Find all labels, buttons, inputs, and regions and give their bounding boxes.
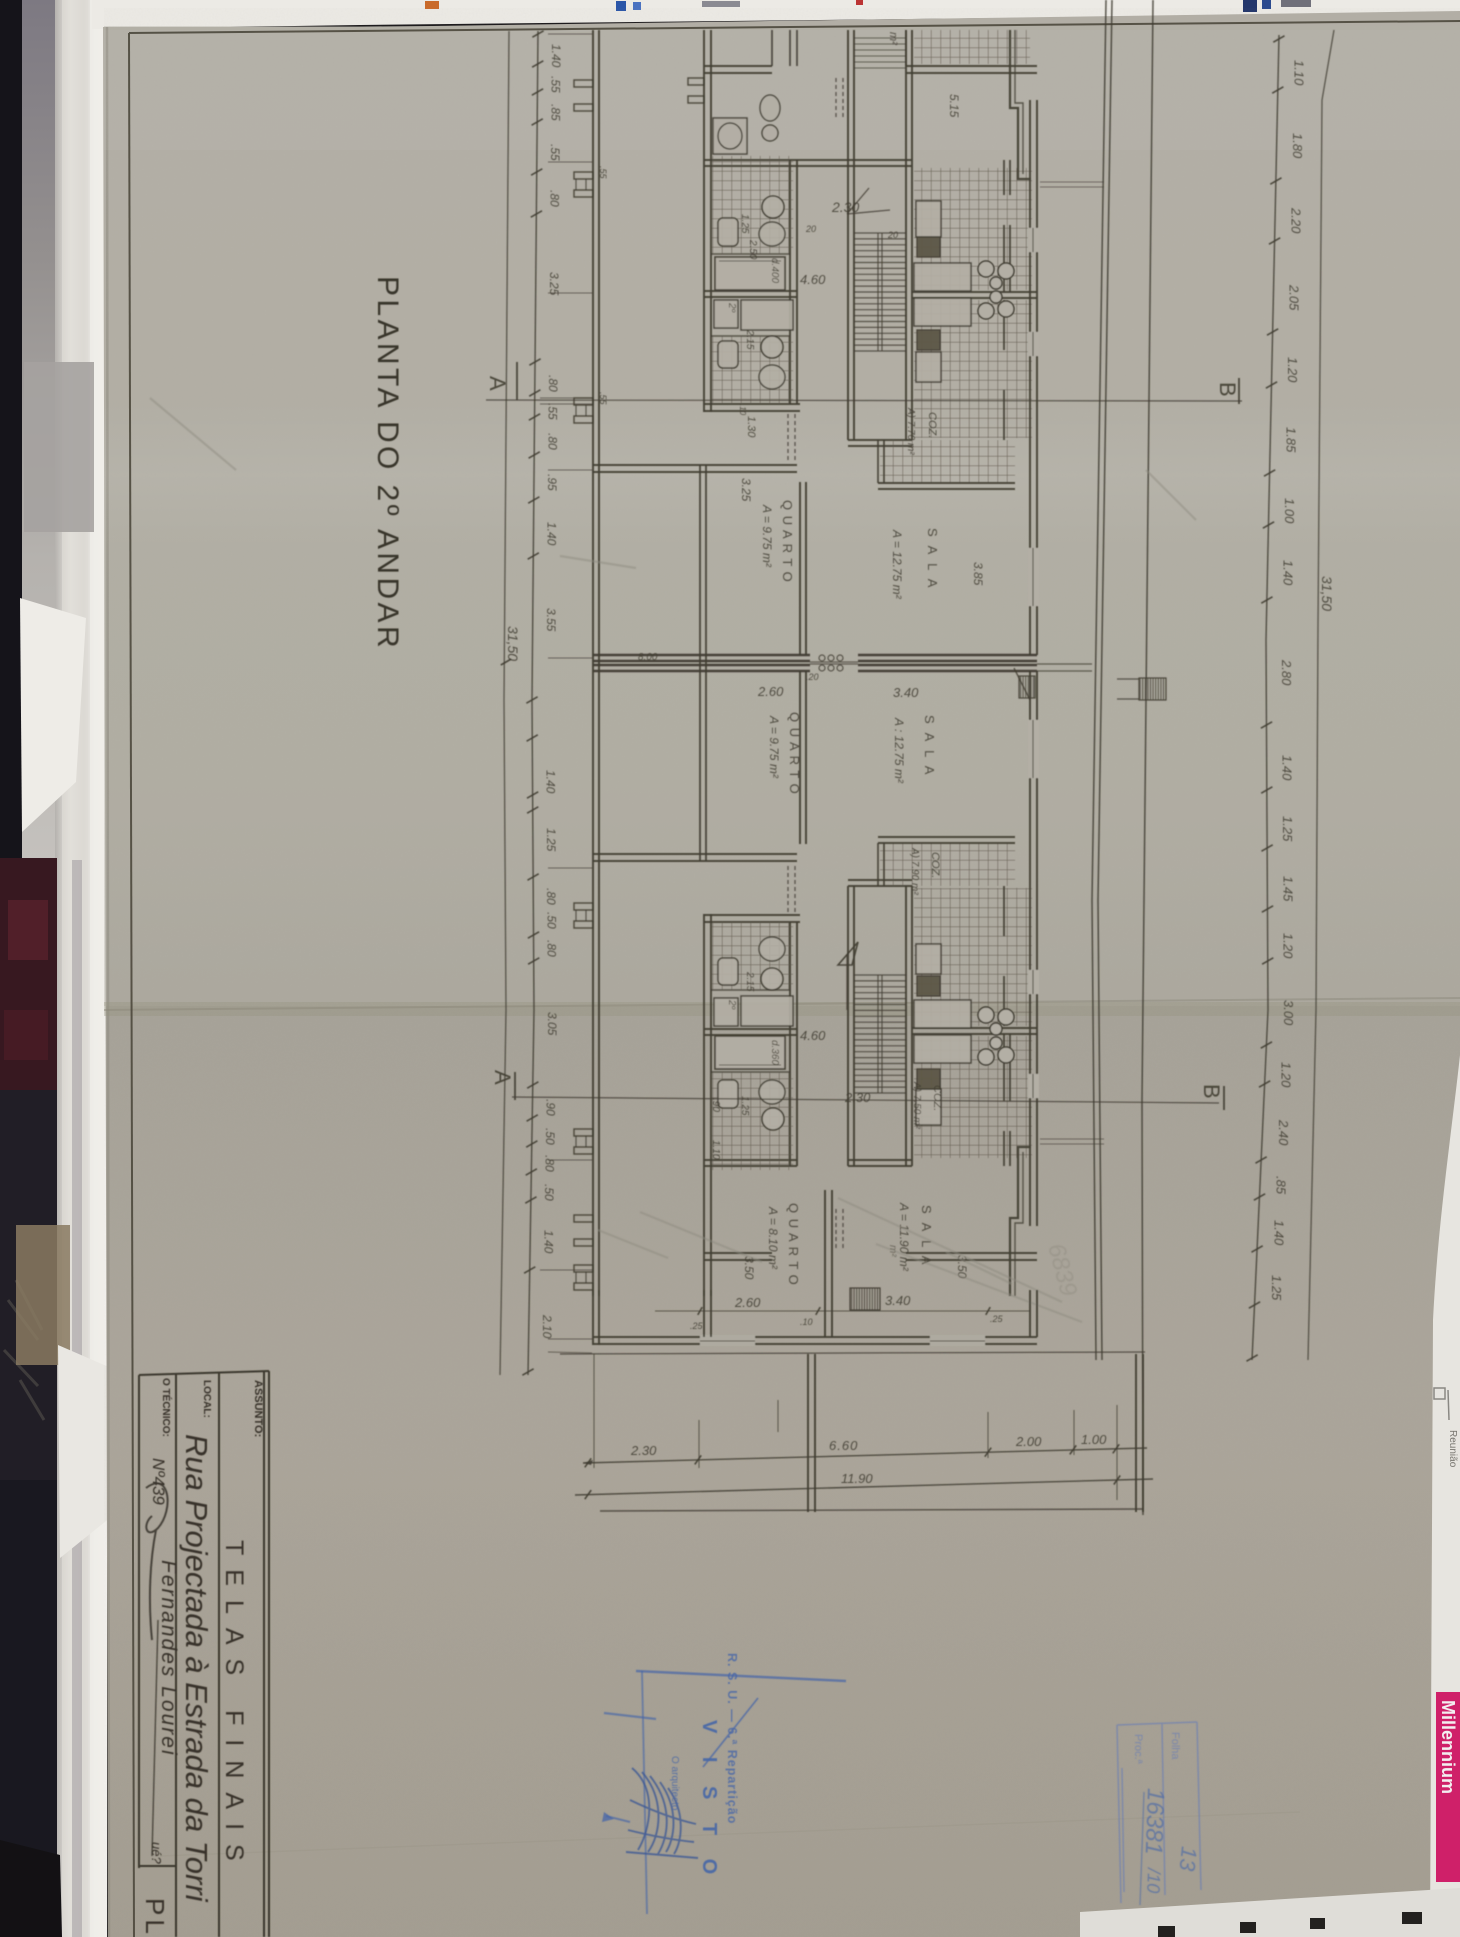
svg-text:A) 7.90 m²: A) 7.90 m² — [909, 847, 920, 895]
svg-text:Nº439: Nº439 — [149, 1458, 168, 1505]
svg-text:LOCAL:: LOCAL: — [201, 1380, 212, 1418]
svg-text:.25: .25 — [990, 1314, 1004, 1324]
svg-text:ué?: ué? — [149, 1842, 164, 1864]
svg-text:S A L A: S A L A — [922, 715, 937, 777]
svg-text:.90: .90 — [710, 1098, 721, 1112]
svg-text:3.25: 3.25 — [739, 478, 753, 502]
svg-text:3.25: 3.25 — [547, 272, 561, 296]
svg-text:d.360: d.360 — [769, 1040, 780, 1065]
svg-text:PLANTA DO 2º ANDAR: PLANTA DO 2º ANDAR — [371, 276, 404, 651]
svg-text:.80: .80 — [545, 940, 559, 957]
svg-text:1.40: 1.40 — [1271, 1220, 1286, 1246]
svg-text:2.60: 2.60 — [734, 1295, 761, 1310]
svg-text:8.00: 8.00 — [638, 652, 658, 663]
svg-text:1.25: 1.25 — [739, 1096, 750, 1116]
svg-text:.55: .55 — [598, 392, 608, 406]
svg-text:2.80: 2.80 — [1279, 659, 1294, 686]
svg-text:.50: .50 — [543, 1128, 557, 1145]
svg-text:1.25: 1.25 — [1269, 1275, 1284, 1301]
svg-text:m²: m² — [887, 32, 899, 45]
svg-text:Fernandes Lourei: Fernandes Lourei — [157, 1560, 180, 1757]
svg-text:Q U A R T O: Q U A R T O — [780, 500, 795, 583]
svg-text:.55: .55 — [546, 403, 560, 420]
svg-text:1.40: 1.40 — [545, 522, 559, 546]
svg-text:.90: .90 — [544, 1099, 558, 1116]
svg-text:V I S T O: V I S T O — [698, 1720, 720, 1883]
svg-text:ASSUNTO:: ASSUNTO: — [252, 1380, 264, 1437]
svg-text:3.05: 3.05 — [545, 1012, 559, 1036]
svg-text:1.10: 1.10 — [1292, 60, 1307, 86]
svg-text:31,50: 31,50 — [505, 626, 521, 661]
svg-text:1.25: 1.25 — [739, 214, 750, 234]
svg-text:.50: .50 — [544, 912, 558, 929]
svg-text:4.60: 4.60 — [800, 1028, 826, 1043]
svg-text:3.00: 3.00 — [1281, 1000, 1296, 1026]
svg-text:2.30: 2.30 — [844, 1090, 871, 1105]
svg-text:2.15: 2.15 — [744, 971, 755, 992]
svg-text:S A L A: S A L A — [925, 528, 940, 590]
svg-text:3.85: 3.85 — [971, 562, 985, 586]
svg-text:.10: .10 — [738, 404, 747, 416]
svg-text:Q U A R T O: Q U A R T O — [786, 1203, 801, 1286]
svg-text:PL: PL — [140, 1898, 170, 1937]
svg-text:.80: .80 — [544, 888, 558, 905]
svg-text:O TÉCNICO:: O TÉCNICO: — [160, 1378, 173, 1437]
svg-text:O arquitecto: O arquitecto — [669, 1756, 680, 1811]
svg-text:2.20: 2.20 — [1288, 207, 1303, 234]
svg-text:COZ.: COZ. — [931, 1085, 943, 1111]
svg-text:1.00: 1.00 — [1282, 498, 1297, 524]
svg-text:3.55: 3.55 — [544, 608, 558, 632]
svg-text:.10: .10 — [800, 1317, 813, 1327]
svg-text:13: 13 — [1174, 1845, 1202, 1873]
svg-text:1.45: 1.45 — [1280, 876, 1295, 902]
svg-text:Proc.ª: Proc.ª — [1132, 1734, 1144, 1765]
svg-text:20: 20 — [805, 224, 816, 234]
svg-text:1.85: 1.85 — [1284, 427, 1299, 453]
svg-text:.80: .80 — [548, 190, 562, 207]
svg-text:6.60: 6.60 — [829, 1438, 858, 1453]
svg-text:2.05: 2.05 — [1287, 284, 1302, 311]
svg-text:1.20: 1.20 — [1281, 933, 1296, 959]
svg-text:d.400: d.400 — [769, 258, 780, 283]
svg-text:1.20: 1.20 — [1279, 1062, 1294, 1088]
svg-text:2º: 2º — [726, 999, 737, 1011]
svg-text:B: B — [1215, 382, 1240, 397]
svg-text:R. S. U. — 6.ª Repartição: R. S. U. — 6.ª Repartição — [725, 1653, 739, 1824]
svg-text:.80: .80 — [543, 1155, 557, 1172]
svg-text:A : 12.75 m²: A : 12.75 m² — [892, 717, 906, 784]
svg-text:COZ.: COZ. — [926, 412, 938, 438]
svg-text:2.60: 2.60 — [757, 684, 784, 699]
svg-text:.95: .95 — [545, 474, 559, 491]
svg-text:B: B — [1199, 1084, 1224, 1099]
svg-text:A = 11.90 m²: A = 11.90 m² — [897, 1202, 911, 1272]
svg-text:m²: m² — [887, 1245, 898, 1257]
svg-text:A = 9.75 m²: A = 9.75 m² — [760, 504, 774, 568]
svg-text:1.80: 1.80 — [1290, 133, 1305, 159]
svg-text:1.25: 1.25 — [1280, 816, 1295, 842]
svg-text:1.10: 1.10 — [710, 1140, 721, 1160]
svg-text:A: A — [490, 1070, 515, 1085]
svg-text:/10: /10 — [1143, 1866, 1164, 1894]
svg-text:.85: .85 — [548, 104, 562, 121]
svg-text:2.00: 2.00 — [1015, 1434, 1042, 1449]
svg-text:2.10: 2.10 — [540, 1314, 554, 1339]
svg-text:5.15: 5.15 — [947, 94, 961, 118]
svg-text:A = 8.10 m²: A = 8.10 m² — [766, 1206, 780, 1270]
svg-text:1.40: 1.40 — [1281, 560, 1296, 586]
svg-text:Millennium: Millennium — [1438, 1700, 1458, 1794]
svg-text:.50: .50 — [542, 1184, 556, 1201]
svg-text:.55: .55 — [548, 144, 562, 161]
svg-text:2.30: 2.30 — [630, 1443, 657, 1458]
svg-text:Folha: Folha — [1169, 1732, 1181, 1760]
svg-text:COZ.: COZ. — [929, 852, 941, 878]
svg-text:1.40: 1.40 — [549, 44, 563, 68]
svg-text:Q U A R T O: Q U A R T O — [787, 712, 802, 795]
svg-text:1.25: 1.25 — [544, 828, 558, 852]
svg-text:.20: .20 — [806, 672, 819, 682]
svg-text:.55: .55 — [549, 76, 563, 93]
svg-text:.85: .85 — [1273, 1176, 1288, 1195]
svg-text:A) 7.70 m²: A) 7.70 m² — [905, 407, 916, 455]
svg-text:11.90: 11.90 — [841, 1471, 873, 1486]
svg-text:1.30: 1.30 — [745, 416, 757, 438]
svg-text:.25: .25 — [690, 1321, 704, 1331]
svg-text:1.40: 1.40 — [544, 770, 558, 794]
svg-text:2º: 2º — [726, 302, 737, 314]
svg-text:2.15: 2.15 — [744, 329, 755, 350]
svg-text:2.40: 2.40 — [1276, 1119, 1291, 1146]
svg-text:A) 7.50 m²: A) 7.50 m² — [911, 1081, 922, 1129]
svg-text:20: 20 — [887, 230, 898, 240]
svg-text:Reunião: Reunião — [1447, 1430, 1458, 1468]
svg-text:31,50: 31,50 — [1319, 576, 1335, 611]
svg-text:.55: .55 — [598, 166, 608, 180]
svg-text:3.40: 3.40 — [893, 685, 919, 700]
svg-text:Rua Projectada à Estrada da To: Rua Projectada à Estrada da Torri — [179, 1434, 214, 1903]
svg-text:4.60: 4.60 — [800, 272, 826, 287]
svg-text:1.20: 1.20 — [1285, 357, 1300, 383]
svg-text:.80: .80 — [546, 375, 560, 392]
svg-text:TELAS FINAIS: TELAS FINAIS — [220, 1540, 248, 1875]
svg-text:3.40: 3.40 — [885, 1293, 911, 1308]
svg-text:A = 9.75 m²: A = 9.75 m² — [767, 715, 781, 779]
svg-text:.80: .80 — [545, 433, 559, 450]
svg-text:1.00: 1.00 — [1081, 1432, 1107, 1447]
svg-text:1.40: 1.40 — [1280, 755, 1295, 781]
svg-text:2.50: 2.50 — [747, 239, 758, 260]
svg-text:A = 12.75 m²: A = 12.75 m² — [890, 529, 904, 600]
svg-text:1.40: 1.40 — [541, 1230, 555, 1254]
